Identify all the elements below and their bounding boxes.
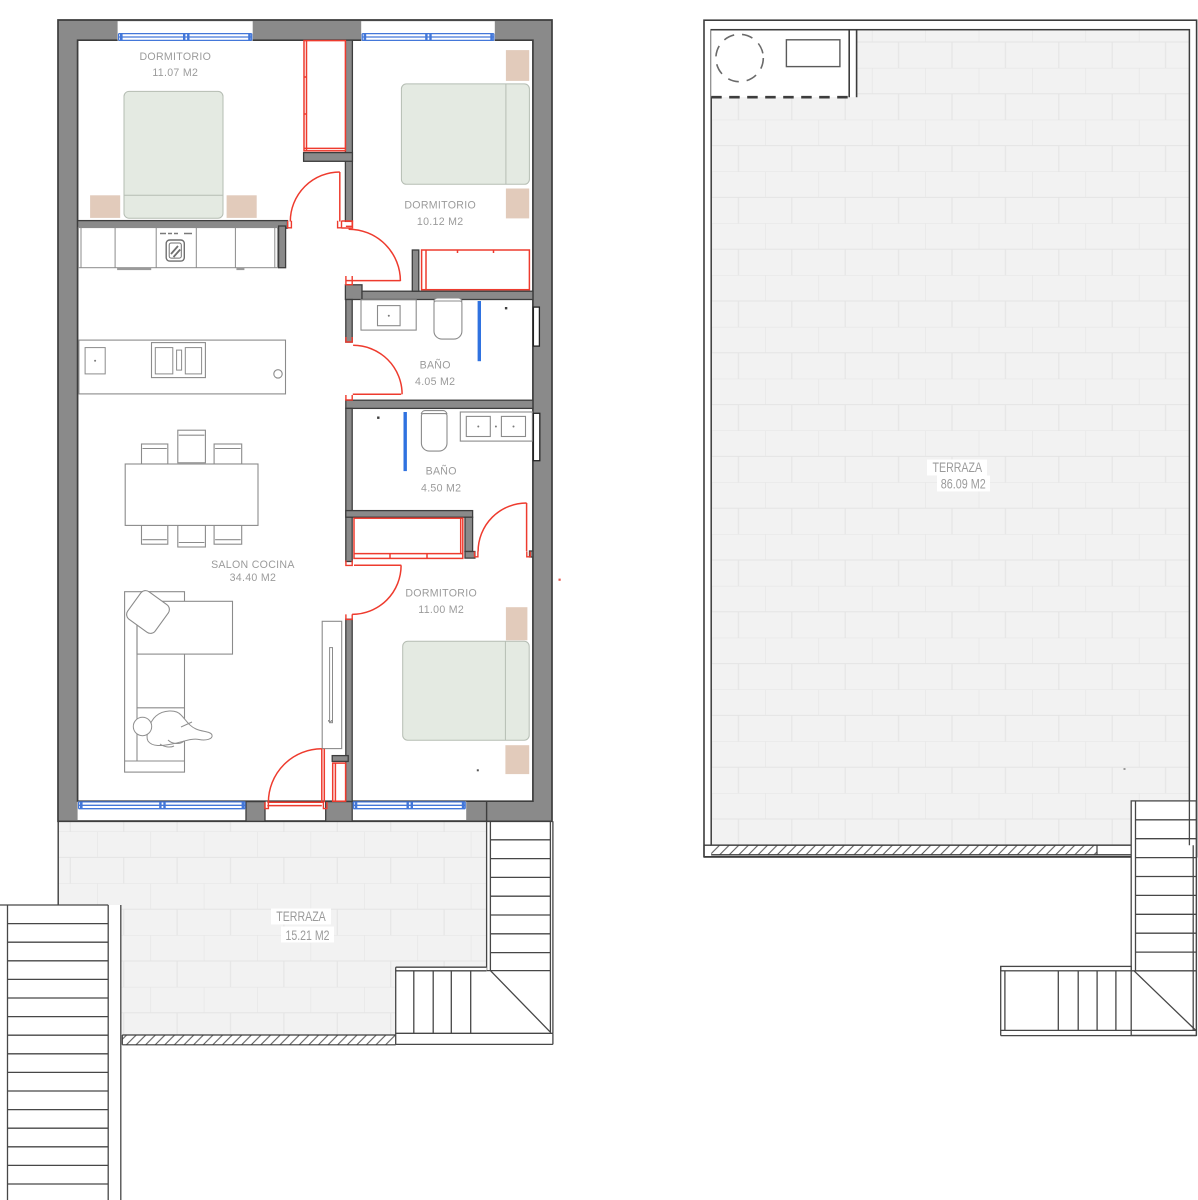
- svg-text:34.40 M2: 34.40 M2: [230, 572, 277, 584]
- svg-text:BAÑO: BAÑO: [426, 464, 457, 477]
- svg-text:TERRAZA: TERRAZA: [933, 460, 983, 475]
- svg-text:11.07 M2: 11.07 M2: [152, 67, 198, 79]
- svg-text:10.12 M2: 10.12 M2: [417, 216, 464, 228]
- svg-text:86.09 M2: 86.09 M2: [941, 476, 986, 491]
- svg-text:11.00 M2: 11.00 M2: [418, 604, 464, 616]
- svg-text:15.21 M2: 15.21 M2: [286, 928, 330, 943]
- svg-text:DORMITORIO: DORMITORIO: [405, 588, 477, 600]
- svg-text:BAÑO: BAÑO: [420, 358, 451, 371]
- svg-text:SALON COCINA: SALON COCINA: [211, 559, 295, 571]
- svg-text:4.05 M2: 4.05 M2: [415, 376, 455, 388]
- svg-text:DORMITORIO: DORMITORIO: [404, 199, 476, 211]
- svg-text:4.50 M2: 4.50 M2: [421, 482, 461, 494]
- svg-text:DORMITORIO: DORMITORIO: [139, 51, 211, 63]
- svg-text:TERRAZA: TERRAZA: [276, 909, 326, 924]
